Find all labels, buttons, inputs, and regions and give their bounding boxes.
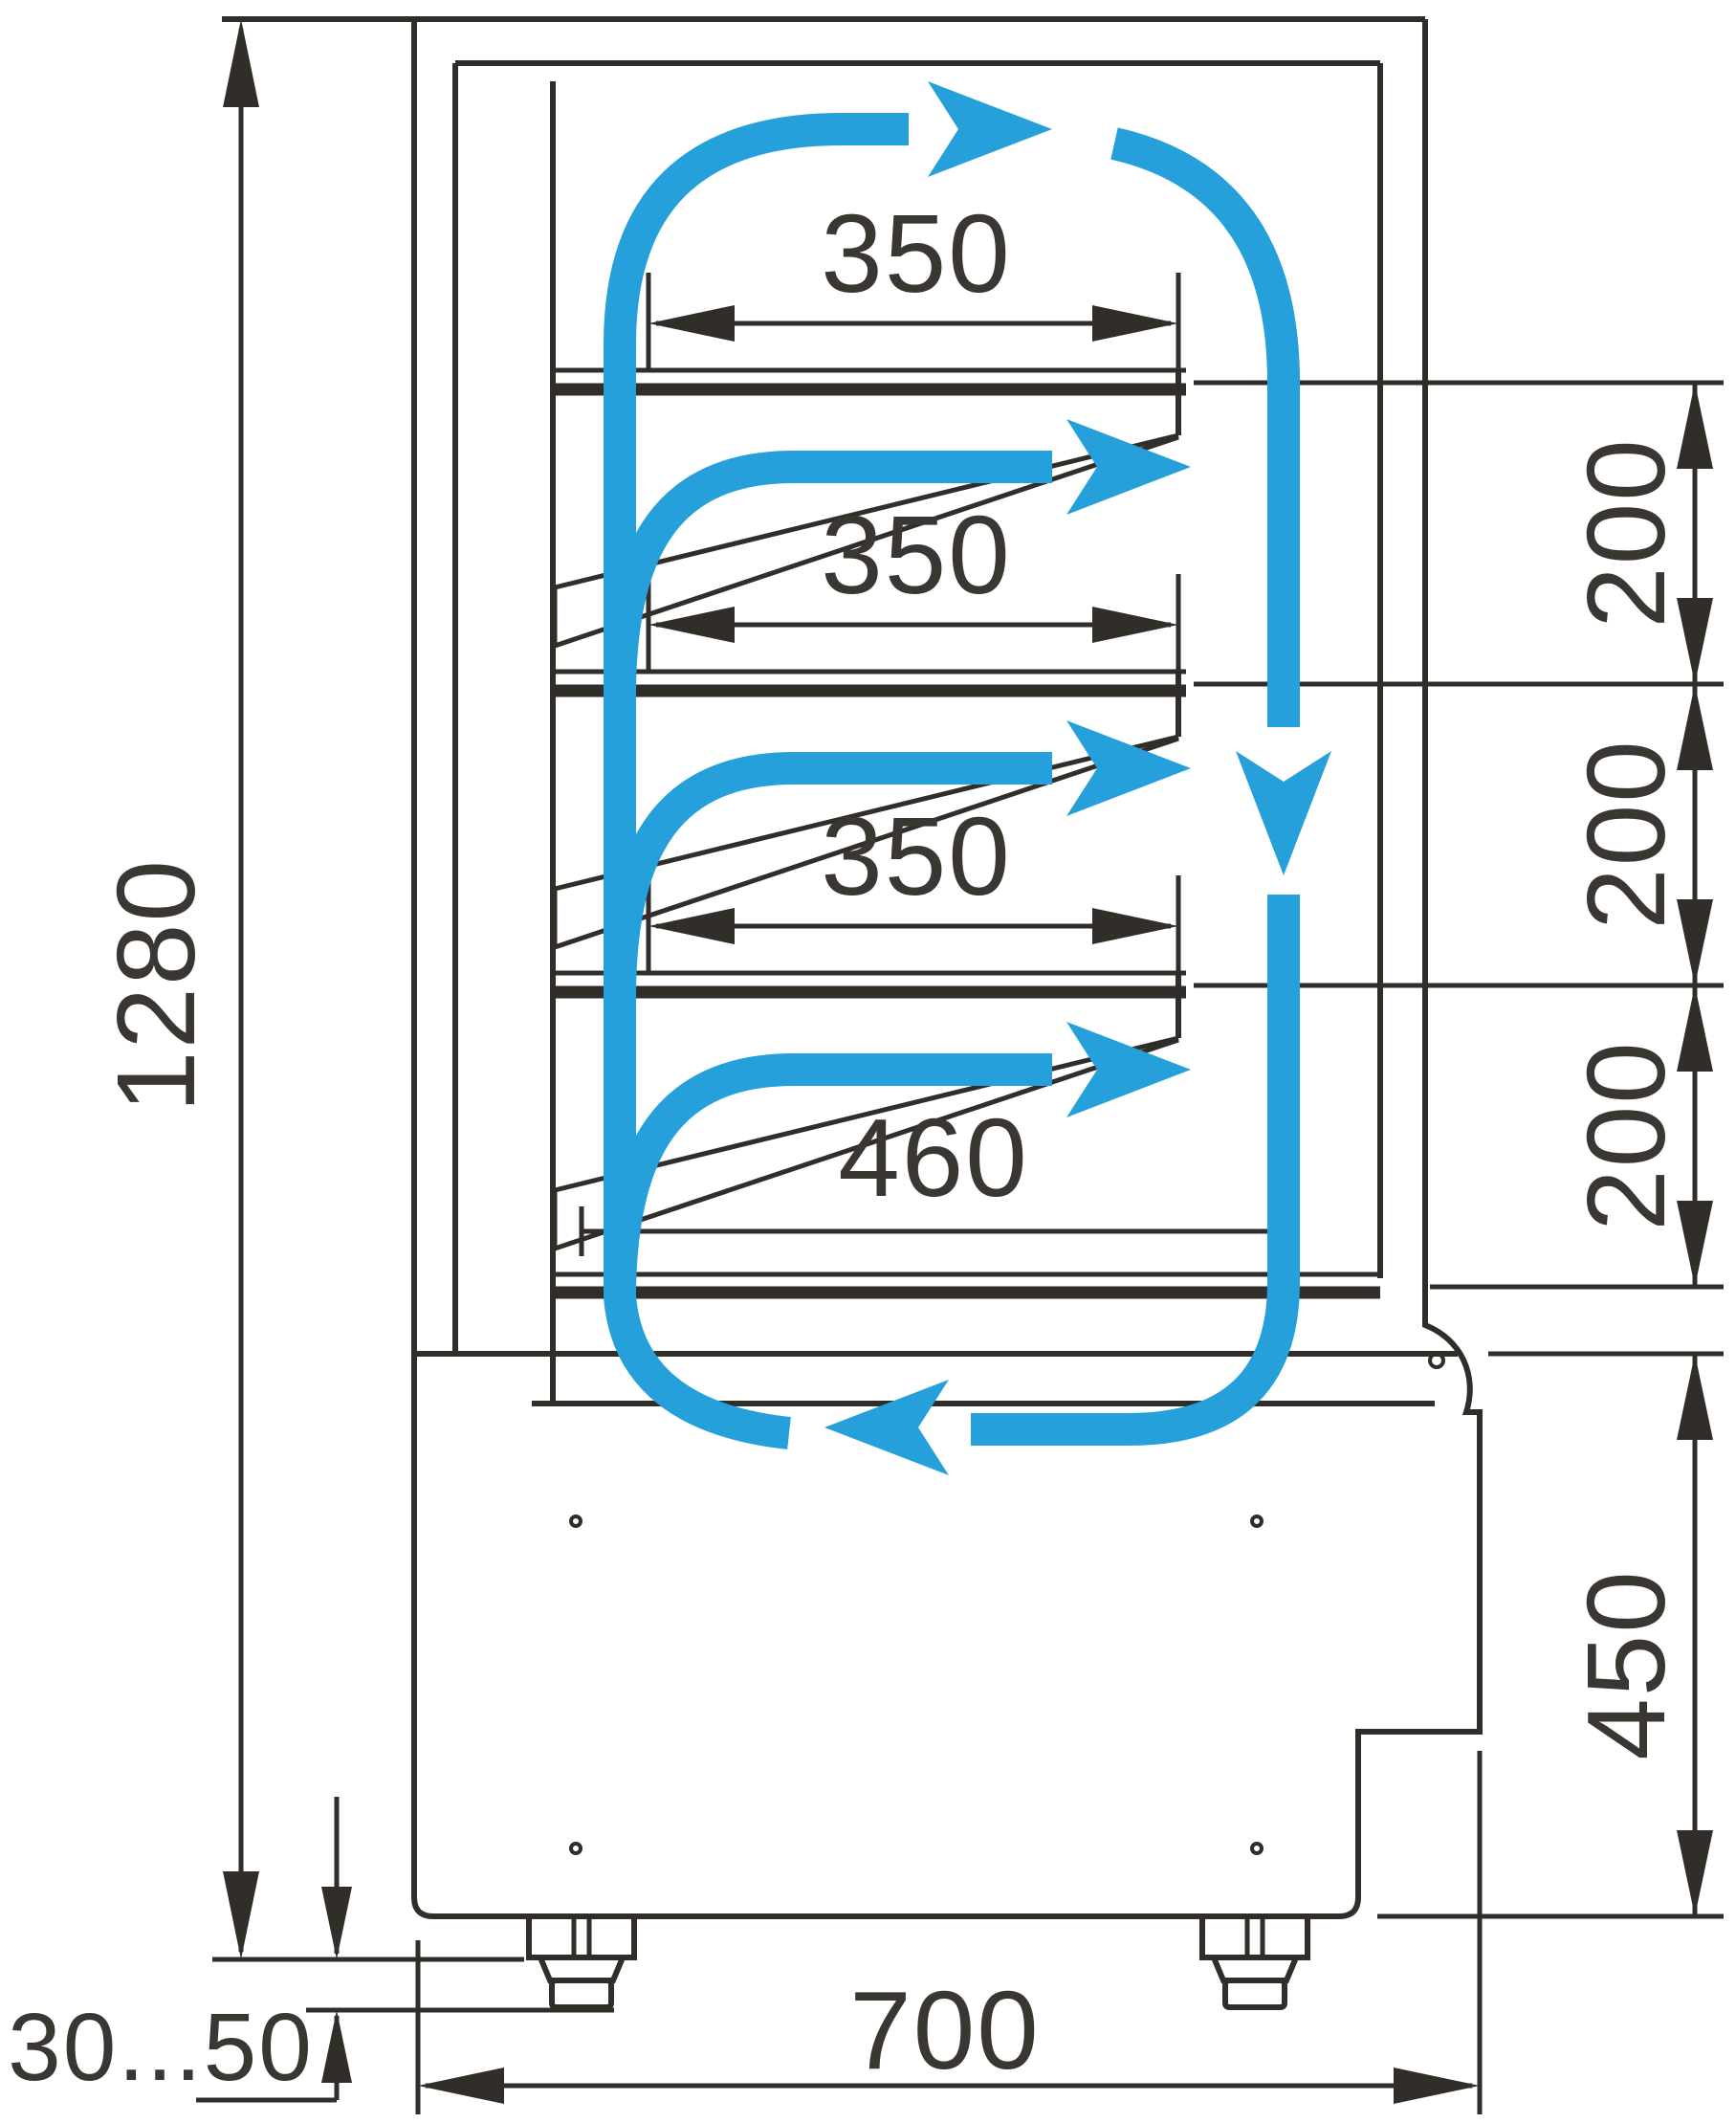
technical-drawing-canvas: 1280 350 350 350 — [0, 0, 1736, 2123]
rivet — [571, 1844, 581, 1853]
dim-base-depth: 700 — [418, 1751, 1480, 2114]
airflow-descent-front — [1114, 144, 1284, 727]
airflow-arrow-down-icon — [1236, 751, 1331, 875]
foot-neck — [1214, 1957, 1296, 1980]
arrow-down-icon — [223, 1871, 259, 1959]
dim-base-height: 450 — [1377, 1354, 1724, 1916]
dim-shelf-3-depth: 350 — [648, 794, 1178, 976]
foot-neck — [540, 1957, 623, 1980]
dim-shelf-1-depth: 350 — [648, 191, 1178, 373]
foot-pad — [1225, 1980, 1285, 2007]
dim-total-height: 1280 — [94, 19, 259, 1959]
dim-foot-range: 30...50 — [8, 1797, 352, 2101]
foot-flange — [529, 1916, 634, 1957]
airflow-arrow-left-icon — [824, 1380, 949, 1475]
dim-label-shelf-1-depth: 350 — [821, 191, 1012, 316]
arrow-left-icon — [648, 305, 735, 342]
dim-label-base-depth: 700 — [849, 1968, 1041, 2092]
arrow-right-icon — [1092, 305, 1178, 342]
arrow-up-icon — [223, 19, 259, 107]
rivet — [571, 1516, 581, 1526]
dim-label-gap-1: 200 — [1564, 437, 1688, 629]
rivet — [1252, 1844, 1262, 1853]
dim-label-foot-range: 30...50 — [8, 1994, 314, 2101]
dim-label-shelf-3-depth: 350 — [821, 794, 1012, 918]
arrow-right-icon — [1394, 2068, 1480, 2104]
dim-label-bottom-depth: 460 — [838, 1095, 1029, 1220]
dim-label-gap-3: 200 — [1564, 1040, 1688, 1231]
rivet — [1252, 1516, 1262, 1526]
dim-label-shelf-2-depth: 350 — [821, 493, 1012, 617]
foot-pad — [552, 1980, 611, 2007]
foot-flange — [1202, 1916, 1307, 1957]
foot-right — [1202, 1916, 1307, 2007]
airflow-arrow-right-icon — [928, 81, 1052, 177]
dim-shelf-2-depth: 350 — [648, 493, 1178, 674]
adjustable-feet — [212, 1916, 1307, 2010]
arrow-right-icon — [1092, 908, 1178, 944]
arrow-up-icon — [1677, 1354, 1713, 1440]
dim-label-total-height: 1280 — [94, 858, 218, 1113]
dim-label-gap-2: 200 — [1564, 739, 1688, 930]
bottom-deck — [553, 1274, 1380, 1293]
arrow-down-icon — [1677, 1830, 1713, 1916]
arrow-right-icon — [1092, 607, 1178, 643]
display-case-section-drawing: 1280 350 350 350 — [0, 0, 1736, 2123]
arrow-down-icon — [321, 1887, 352, 1959]
dim-label-base-height: 450 — [1564, 1569, 1688, 1760]
arrow-left-icon — [418, 2068, 504, 2104]
foot-left — [529, 1916, 634, 2007]
